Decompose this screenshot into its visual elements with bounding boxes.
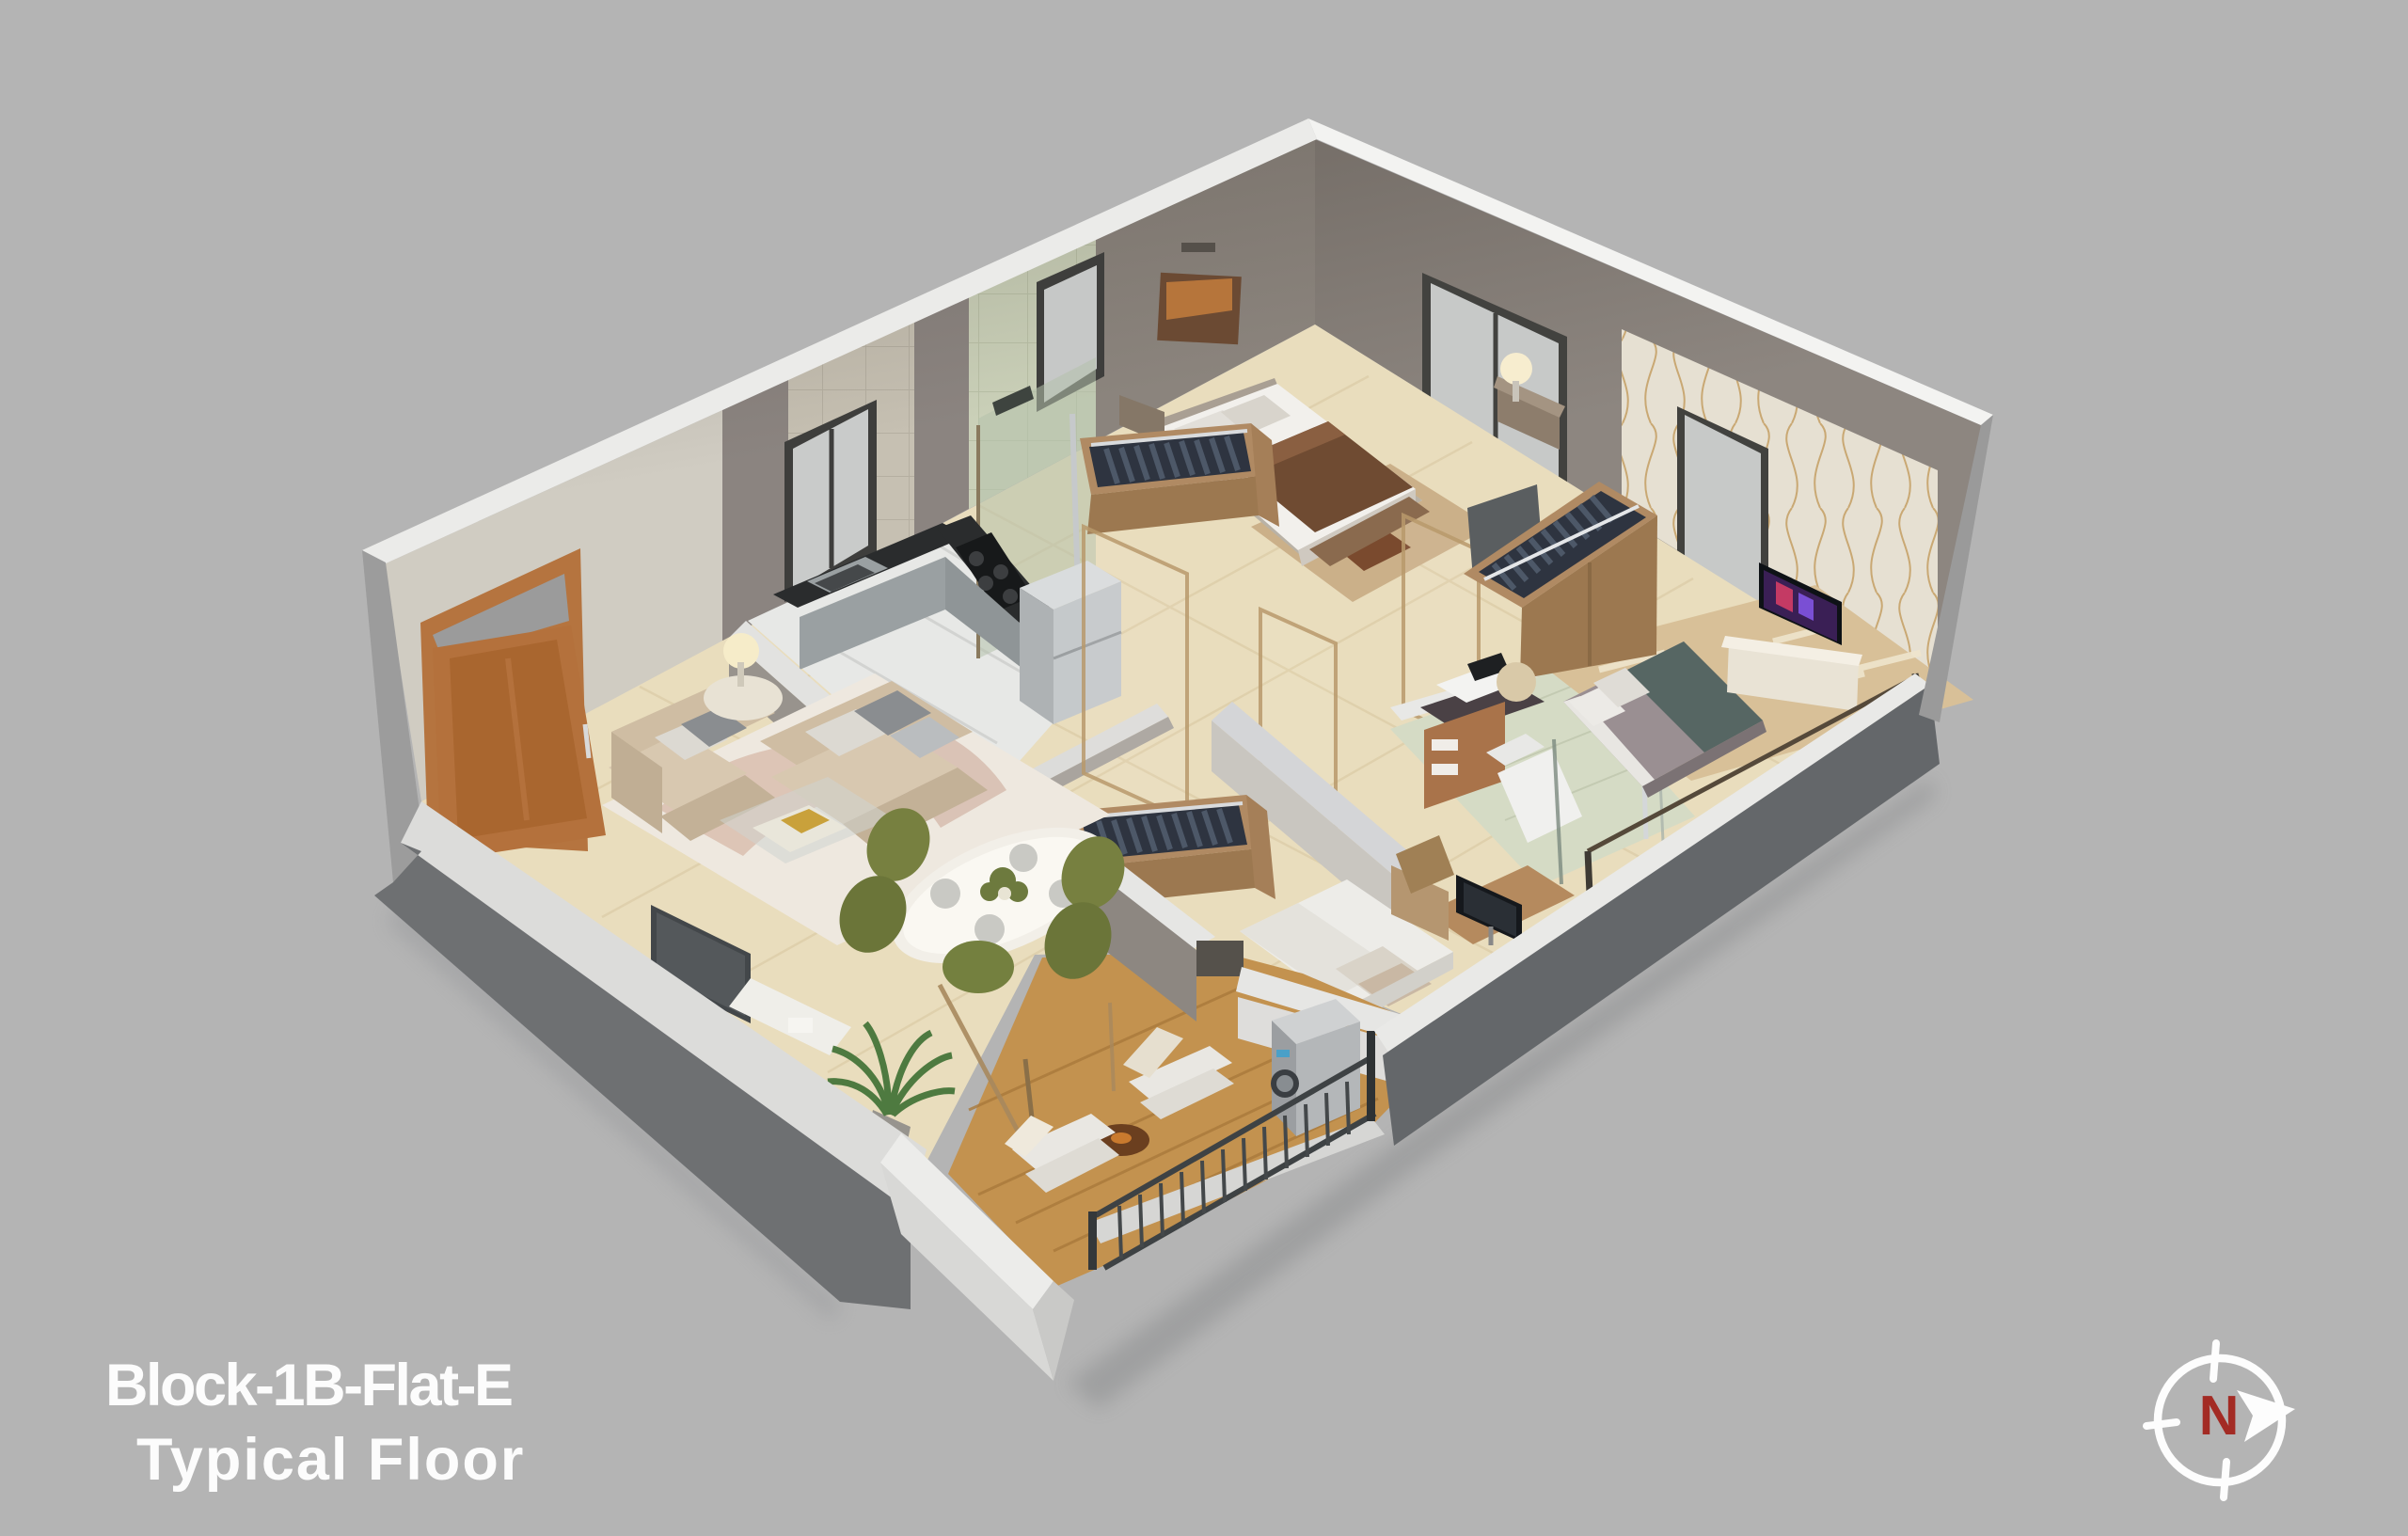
svg-text:N: N	[2199, 1385, 2240, 1447]
